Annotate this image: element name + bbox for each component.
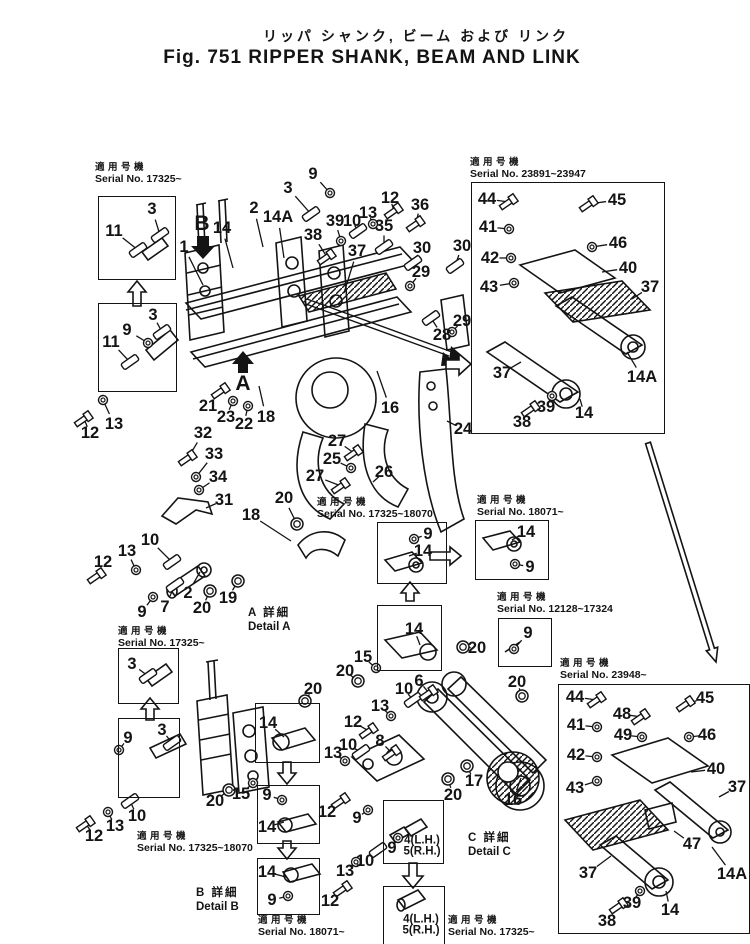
callout-39: 39 [326,213,344,230]
callout-37: 37 [493,365,511,382]
callout-30: 30 [413,240,431,257]
callout-12: 12 [344,714,362,731]
callout-45: 45 [608,192,626,209]
callout-43: 43 [566,780,584,797]
serial-number-text: Serial No. 17325~ [448,926,535,938]
callout-14: 14 [405,621,423,638]
callout-8: 8 [375,733,384,750]
label-overlay: 適用号機Serial No. 17325~適用号機Serial No. 2389… [0,0,750,944]
callout-46: 46 [698,727,716,744]
callout-11: 11 [102,334,119,351]
callout-45: 45 [696,690,714,707]
callout-3: 3 [127,656,136,673]
serial-number-label: 適用号機Serial No. 23891~23947 [470,157,586,181]
serial-label-japanese: 適用号機 [258,915,345,926]
callout-6: 6 [414,673,423,690]
detail-view-label: B 詳細Detail B [196,886,239,915]
serial-box-frame [255,703,320,763]
callout-15: 15 [354,649,372,666]
callout-10: 10 [128,808,146,825]
serial-box-frame [377,522,447,584]
serial-number-text: Serial No. 12128~17324 [497,603,613,615]
callout-20: 20 [468,640,486,657]
callout-9: 9 [123,730,132,747]
callout-25: 25 [323,451,341,468]
detail-view-label: A 詳細Detail A [248,606,290,635]
callout-20: 20 [508,674,526,691]
callout-9: 9 [387,840,396,857]
serial-label-japanese: 適用号機 [95,162,182,173]
callout-14: 14 [517,524,535,541]
callout-40: 40 [619,260,637,277]
callout-9: 9 [525,559,534,576]
serial-number-text: Serial No. 17325~18070 [317,508,433,520]
callout-38: 38 [304,227,322,244]
detail-label-japanese: C 詳細 [468,831,511,845]
callout-20: 20 [275,490,293,507]
serial-number-text: Serial No. 18071~ [258,926,345,938]
detail-label-japanese: B 詳細 [196,886,239,900]
callout-34: 34 [209,469,227,486]
callout-16: 16 [381,400,399,417]
serial-number-text: Serial No. 17325~18070 [137,842,253,854]
callout-2: 2 [183,585,192,602]
callout-10: 10 [141,532,159,549]
serial-number-text: Serial No. 17325~ [118,637,205,649]
serial-number-label: 適用号機Serial No. 18071~ [258,915,345,939]
callout-9: 9 [262,787,271,804]
serial-box-frame [471,182,665,434]
callout-14: 14 [259,715,277,732]
callout-9: 9 [122,322,131,339]
callout-21: 21 [199,398,217,415]
serial-label-japanese: 適用号機 [470,157,586,168]
callout-13: 13 [336,863,354,880]
callout-14: 14 [414,543,432,560]
serial-number-label: 適用号機Serial No. 17325~ [448,915,535,939]
callout-20: 20 [193,600,211,617]
serial-number-text: Serial No. 18071~ [477,506,564,518]
serial-label-japanese: 適用号機 [317,497,433,508]
callout-12: 12 [85,828,103,845]
callout-13: 13 [118,543,136,560]
callout-9: 9 [137,604,146,621]
callout-27: 27 [306,468,324,485]
callout-18: 18 [242,507,260,524]
serial-number-label: 適用号機Serial No. 17325~ [118,626,205,650]
callout-13: 13 [105,416,123,433]
callout-5(R.H.): 5(R.H.) [402,925,439,937]
serial-box-frame [377,605,442,671]
callout-3: 3 [157,722,166,739]
callout-27: 27 [328,433,346,450]
callout-44: 44 [566,689,584,706]
serial-number-label: 適用号機Serial No. 18071~ [477,495,564,519]
callout-37: 37 [641,279,659,296]
callout-11: 11 [105,223,122,240]
callout-2: 2 [249,200,258,217]
callout-35: 35 [375,218,393,235]
callout-28: 28 [433,327,451,344]
callout-9: 9 [423,526,432,543]
serial-label-japanese: 適用号機 [448,915,535,926]
view-marker-a: A [235,372,250,396]
callout-13: 13 [371,698,389,715]
callout-12: 12 [321,893,339,910]
callout-24: 24 [454,421,472,438]
callout-14: 14 [661,902,679,919]
callout-36: 36 [411,197,429,214]
serial-label-japanese: 適用号機 [477,495,564,506]
callout-14: 14 [575,405,593,422]
serial-label-japanese: 適用号機 [497,592,613,603]
callout-12: 12 [81,425,99,442]
callout-15: 15 [232,786,250,803]
callout-3: 3 [148,307,157,324]
callout-9: 9 [523,625,532,642]
serial-number-label: 適用号機Serial No. 12128~17324 [497,592,613,616]
view-marker-b: B [194,212,209,236]
callout-14: 14 [258,819,276,836]
parts-catalog-page: リッパ シャンク, ビーム および リンク Fig. 751 RIPPER SH… [0,0,750,944]
callout-37: 37 [579,865,597,882]
callout-42: 42 [567,747,585,764]
callout-10: 10 [356,853,374,870]
callout-9: 9 [352,810,361,827]
detail-label-english: Detail C [468,846,511,858]
serial-number-text: Serial No. 23948~ [560,669,647,681]
callout-1: 1 [179,239,188,256]
callout-26: 26 [375,464,393,481]
serial-label-japanese: 適用号機 [118,626,205,637]
callout-48: 48 [613,706,631,723]
callout-30: 30 [453,238,471,255]
callout-38: 38 [513,414,531,431]
callout-16: 16 [504,792,522,809]
callout-38: 38 [598,913,616,930]
detail-label-english: Detail A [248,621,290,633]
callout-42: 42 [481,250,499,267]
callout-9: 9 [308,166,317,183]
callout-12: 12 [318,804,336,821]
callout-12: 12 [381,190,399,207]
callout-18: 18 [257,409,275,426]
callout-37: 37 [728,779,746,796]
callout-13: 13 [106,818,124,835]
callout-31: 31 [215,492,233,509]
callout-5(R.H.): 5(R.H.) [403,846,440,858]
callout-43: 43 [480,279,498,296]
serial-box-frame [558,684,750,934]
callout-47: 47 [683,836,701,853]
callout-20: 20 [304,681,322,698]
detail-label-japanese: A 詳細 [248,606,290,620]
serial-label-japanese: 適用号機 [560,658,647,669]
serial-number-text: Serial No. 17325~ [95,173,182,185]
callout-40: 40 [707,761,725,778]
serial-number-text: Serial No. 23891~23947 [470,168,586,180]
callout-14: 14 [213,220,231,237]
callout-41: 41 [567,717,585,734]
callout-10: 10 [395,681,413,698]
callout-20: 20 [336,663,354,680]
callout-12: 12 [94,554,112,571]
serial-label-japanese: 適用号機 [137,831,253,842]
callout-13: 13 [324,745,342,762]
callout-29: 29 [453,313,471,330]
callout-3: 3 [283,180,292,197]
callout-49: 49 [614,727,632,744]
callout-39: 39 [537,399,555,416]
serial-number-label: 適用号機Serial No. 17325~18070 [317,497,433,521]
callout-14A: 14A [263,209,293,226]
callout-20: 20 [206,793,224,810]
callout-14A: 14A [627,369,657,386]
callout-19: 19 [219,590,237,607]
callout-29: 29 [412,264,430,281]
callout-23: 23 [217,409,235,426]
callout-33: 33 [205,446,223,463]
callout-20: 20 [444,787,462,804]
callout-14A: 14A [717,866,747,883]
serial-box-frame [475,520,549,580]
callout-41: 41 [479,219,497,236]
callout-7: 7 [160,599,169,616]
callout-22: 22 [235,416,253,433]
serial-number-label: 適用号機Serial No. 17325~18070 [137,831,253,855]
detail-label-english: Detail B [196,901,239,913]
serial-number-label: 適用号機Serial No. 23948~ [560,658,647,682]
callout-46: 46 [609,235,627,252]
callout-44: 44 [478,191,496,208]
callout-3: 3 [147,201,156,218]
callout-39: 39 [623,895,641,912]
detail-view-label: C 詳細Detail C [468,831,511,860]
callout-32: 32 [194,425,212,442]
callout-14: 14 [258,864,276,881]
callout-37: 37 [348,243,366,260]
callout-9: 9 [267,892,276,909]
callout-17: 17 [465,773,483,790]
serial-number-label: 適用号機Serial No. 17325~ [95,162,182,186]
